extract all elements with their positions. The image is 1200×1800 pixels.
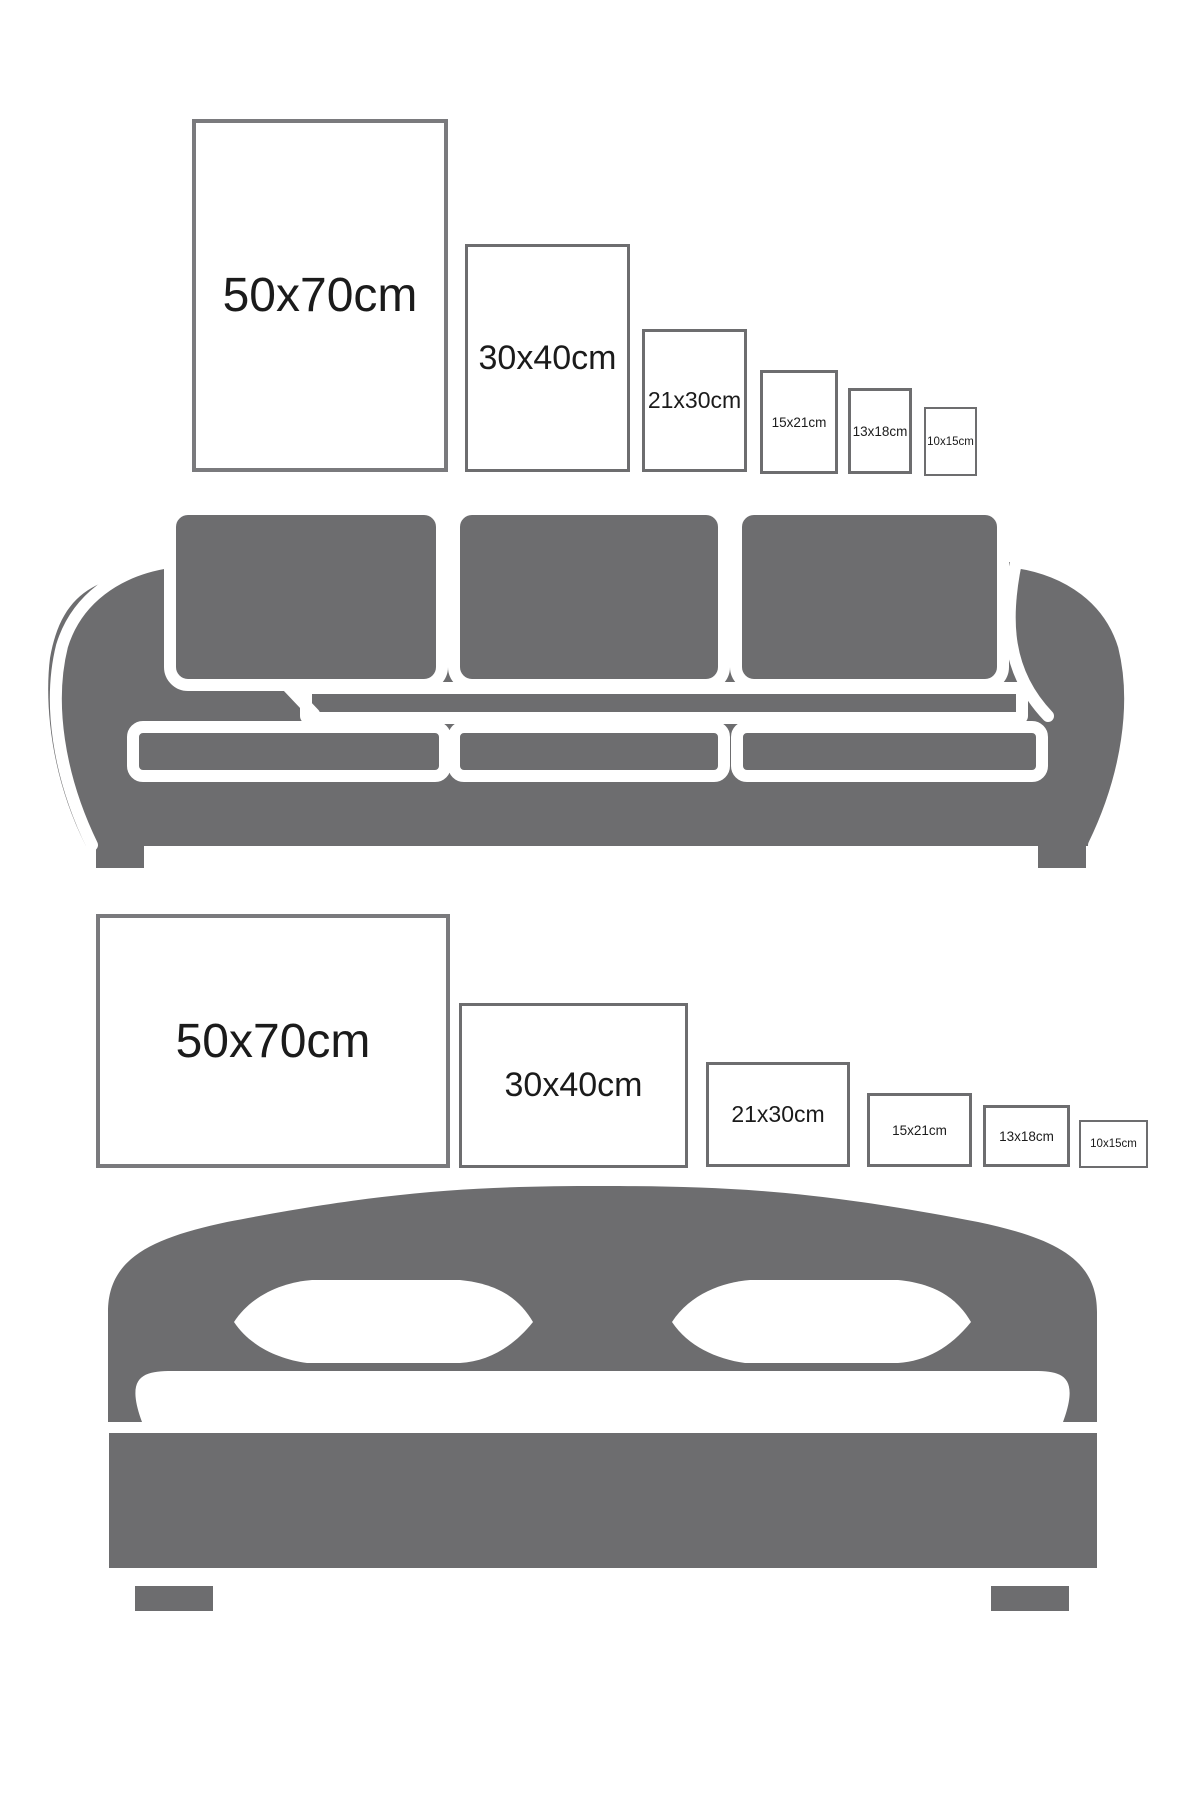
size-frame-13x18-landscape: 13x18cm: [983, 1105, 1070, 1167]
size-frame-10x15-portrait: 10x15cm: [924, 407, 977, 476]
size-frame-13x18-portrait: 13x18cm: [848, 388, 912, 474]
size-label: 13x18cm: [999, 1129, 1054, 1144]
size-label: 10x15cm: [927, 436, 974, 448]
size-frame-21x30-landscape: 21x30cm: [706, 1062, 850, 1167]
size-label: 21x30cm: [648, 387, 741, 414]
size-label: 13x18cm: [853, 424, 908, 439]
size-frame-30x40-portrait: 30x40cm: [465, 244, 630, 472]
size-frame-15x21-portrait: 15x21cm: [760, 370, 838, 474]
poster-size-guide: 50x70cm 30x40cm 21x30cm 15x21cm 13x18cm …: [0, 0, 1200, 1800]
size-frame-10x15-landscape: 10x15cm: [1079, 1120, 1148, 1168]
size-label: 50x70cm: [176, 1014, 371, 1069]
size-frame-21x30-portrait: 21x30cm: [642, 329, 747, 472]
size-frame-50x70-portrait: 50x70cm: [192, 119, 448, 472]
size-frame-15x21-landscape: 15x21cm: [867, 1093, 972, 1167]
size-label: 30x40cm: [479, 339, 617, 378]
size-frame-30x40-landscape: 30x40cm: [459, 1003, 688, 1168]
size-label: 30x40cm: [505, 1066, 643, 1105]
size-label: 10x15cm: [1090, 1138, 1137, 1150]
size-label: 15x21cm: [892, 1123, 947, 1138]
size-label: 21x30cm: [731, 1101, 824, 1128]
size-label: 50x70cm: [223, 268, 418, 323]
size-frame-50x70-landscape: 50x70cm: [96, 914, 450, 1168]
size-label: 15x21cm: [772, 415, 827, 430]
